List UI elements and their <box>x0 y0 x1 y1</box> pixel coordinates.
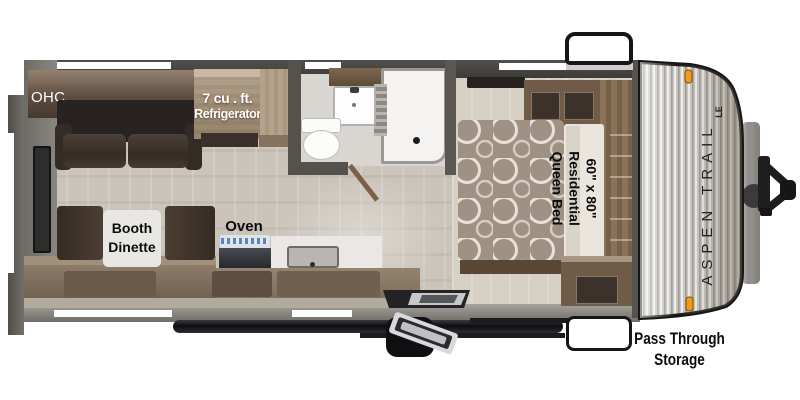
svg-text:ASPEN TRAIL: ASPEN TRAIL <box>699 122 716 285</box>
svg-text:LE: LE <box>714 106 724 118</box>
